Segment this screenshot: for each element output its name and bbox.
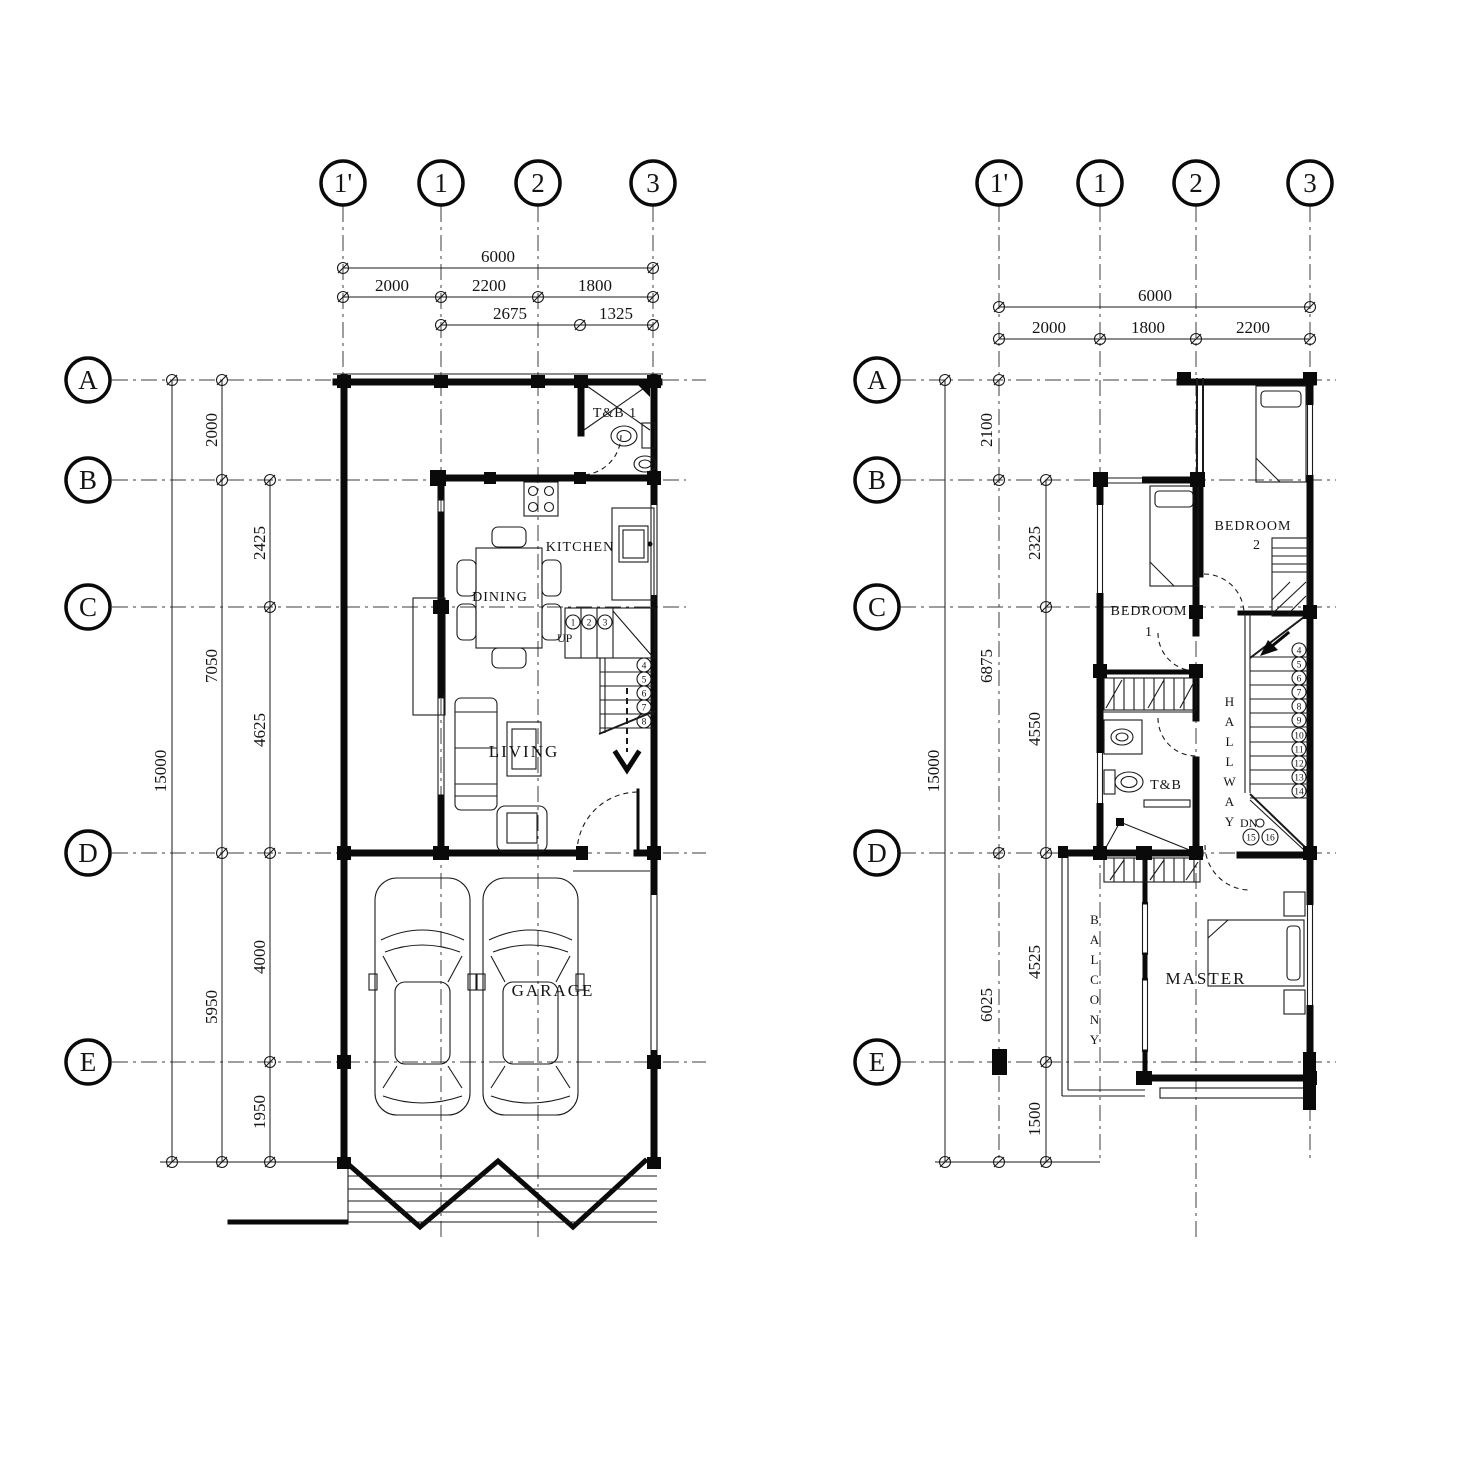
room-label-tb1: T&B 1: [593, 406, 637, 421]
door-swing-arc: [577, 792, 638, 853]
room-label-master: MASTER: [1166, 969, 1247, 988]
ground-living: LIVING: [455, 698, 650, 871]
dim-height-inner: 1950: [250, 1095, 269, 1129]
ground-column-markers: [337, 375, 661, 1169]
step-number: 11: [1294, 746, 1303, 756]
dim-width-sub: 1325: [599, 304, 633, 323]
bed-icon: [1256, 386, 1306, 482]
row-bubble-label: C: [79, 592, 97, 622]
dim-width-seg: 2000: [375, 276, 409, 295]
column-marker: [992, 1049, 1007, 1075]
step-number: 15: [1246, 834, 1256, 844]
step-number: 6: [642, 690, 647, 700]
dim-height-outer: 5950: [202, 990, 221, 1024]
step-number: 2: [587, 619, 592, 629]
step-number: 16: [1265, 834, 1275, 844]
closet-icon: [1104, 858, 1200, 882]
stair-direction-label: UP: [557, 631, 573, 645]
step-number: 7: [642, 704, 647, 714]
stove-icon: [524, 482, 558, 516]
row-bubble-label: C: [868, 592, 886, 622]
step-number: 14: [1294, 788, 1304, 798]
room-label-balcony: BALCONY: [1086, 912, 1102, 1052]
toilet-icon: [611, 423, 655, 448]
dim-height-inner: 4625: [250, 713, 269, 747]
dim-width-seg: 1800: [1131, 318, 1165, 337]
column-bubble-label: 2: [531, 168, 545, 198]
step-number: 5: [1297, 661, 1302, 671]
dim-width-seg: 2200: [1236, 318, 1270, 337]
column-bubble-label: 1': [990, 168, 1008, 198]
dim-height-inner: 4525: [1025, 945, 1044, 979]
dim-height-inner: 4550: [1025, 712, 1044, 746]
step-number: 3: [603, 619, 608, 629]
dim-width-total: 6000: [1138, 286, 1172, 305]
ground-grid-bubbles: 1' 1 2 3 A B C D E: [66, 161, 675, 1084]
dim-height-total: 15000: [924, 750, 943, 793]
garage-gate: [230, 1161, 657, 1227]
row-bubble-label: A: [78, 365, 98, 395]
dim-height-outer: 2100: [977, 413, 996, 447]
row-bubble-label: A: [867, 365, 887, 395]
chair-icon: [492, 527, 526, 547]
room-label-garage: GARAGE: [512, 981, 595, 1000]
dim-height-outer: 6875: [977, 649, 996, 683]
ground-stairs: UP 1 2 3 4 5 6 7 8: [557, 608, 655, 770]
room-label-tb: T&B: [1150, 778, 1182, 793]
dim-width-total: 6000: [481, 247, 515, 266]
second-bedroom2: BEDROOM 2: [1214, 386, 1308, 616]
chair-icon: [542, 560, 561, 596]
step-number: 10: [1294, 732, 1304, 742]
ground-walls: [333, 374, 663, 1164]
column-bubble-label: 3: [646, 168, 660, 198]
sink-icon: [1104, 720, 1142, 754]
dim-height-inner: 4000: [250, 940, 269, 974]
ground-grid-lines: [112, 206, 706, 1241]
nightstand-icon: [1284, 892, 1305, 916]
step-number: 8: [1297, 703, 1302, 713]
step-number: 5: [642, 676, 647, 686]
chair-icon: [492, 648, 526, 668]
second-balcony: [1062, 848, 1145, 1096]
step-number: 7: [1297, 689, 1302, 699]
room-label-bedroom1-num: 1: [1145, 625, 1153, 640]
armchair-icon: [497, 806, 547, 852]
window-sill: [1160, 1088, 1305, 1098]
row-bubble-label: D: [867, 838, 887, 868]
ground-tb1: T&B 1: [581, 383, 656, 475]
column-bubble-label: 1': [334, 168, 352, 198]
down-arrow-icon: [616, 753, 638, 770]
column-bubble-label: 2: [1189, 168, 1203, 198]
dim-width-sub: 2675: [493, 304, 527, 323]
room-label-bedroom2: BEDROOM: [1214, 519, 1291, 534]
dim-height-outer: 2000: [202, 413, 221, 447]
shower-shelf: [1144, 800, 1190, 807]
step-number: 4: [1297, 647, 1302, 657]
chair-icon: [457, 604, 476, 640]
dim-height-inner: 1500: [1025, 1102, 1044, 1136]
column-bubble-label: 3: [1303, 168, 1317, 198]
row-bubble-label: B: [79, 465, 97, 495]
door-swing-arc: [1204, 574, 1244, 614]
ground-kitchen: KITCHEN: [524, 482, 654, 600]
dim-height-outer: 7050: [202, 649, 221, 683]
row-bubble-label: E: [80, 1047, 97, 1077]
dim-height-inner: 2425: [250, 526, 269, 560]
nightstand-icon: [1284, 990, 1305, 1014]
room-label-bedroom2-num: 2: [1253, 538, 1261, 553]
step-number: 8: [642, 718, 647, 728]
room-label-living: LIVING: [489, 742, 560, 761]
floor-plan-drawing: 1' 1 2 3 A B C D E 6000: [0, 0, 1467, 1468]
dim-width-seg: 2200: [472, 276, 506, 295]
car-icon: [369, 878, 476, 1115]
room-label-hallway: HALLWAY: [1221, 694, 1237, 834]
room-label-kitchen: KITCHEN: [546, 540, 614, 555]
column-bubble-label: 1: [1093, 168, 1107, 198]
column-bubble-label: 1: [434, 168, 448, 198]
row-bubble-label: D: [78, 838, 98, 868]
dim-height-inner: 2325: [1025, 526, 1044, 560]
second-floor-plan: 1' 1 2 3 A B C D E 6000: [855, 161, 1336, 1241]
wardrobe-icon: [1272, 538, 1308, 616]
floor-plan-sheet: 1' 1 2 3 A B C D E 6000: [0, 0, 1467, 1468]
dim-width-seg: 1800: [578, 276, 612, 295]
row-bubble-label: E: [869, 1047, 886, 1077]
dim-height-outer: 6025: [977, 988, 996, 1022]
step-number: 1: [571, 619, 576, 629]
shower-drain-icon: [1116, 818, 1124, 826]
ground-floor-plan: 1' 1 2 3 A B C D E 6000: [66, 161, 706, 1241]
dim-height-total: 15000: [151, 750, 170, 793]
door-swing-arc: [581, 435, 621, 475]
dim-width-seg: 2000: [1032, 318, 1066, 337]
second-stairs: 4 5 6 7 8 9 10 11 12 13 14 DN 15 16: [1240, 613, 1310, 851]
closet-icon: [1104, 678, 1196, 710]
stair-direction-label: DN: [1240, 816, 1258, 830]
room-label-dining: DINING: [472, 590, 528, 605]
kitchen-sink-icon: [619, 526, 653, 562]
ground-garage: GARAGE: [230, 878, 657, 1227]
second-bedroom1: BEDROOM 1: [1110, 486, 1198, 640]
step-number: 6: [1297, 675, 1302, 685]
step-number: 13: [1294, 774, 1304, 784]
toilet-icon: [1104, 770, 1143, 794]
room-label-bedroom1: BEDROOM: [1110, 604, 1187, 619]
second-tb: T&B: [1104, 720, 1192, 851]
row-bubble-label: B: [868, 465, 886, 495]
second-grid-lines: [900, 206, 1336, 1241]
step-number: 12: [1294, 760, 1304, 770]
bed-icon: [1150, 486, 1198, 586]
step-number: 9: [1297, 717, 1302, 727]
door-swing-arc: [1158, 718, 1196, 756]
step-number: 4: [642, 662, 647, 672]
